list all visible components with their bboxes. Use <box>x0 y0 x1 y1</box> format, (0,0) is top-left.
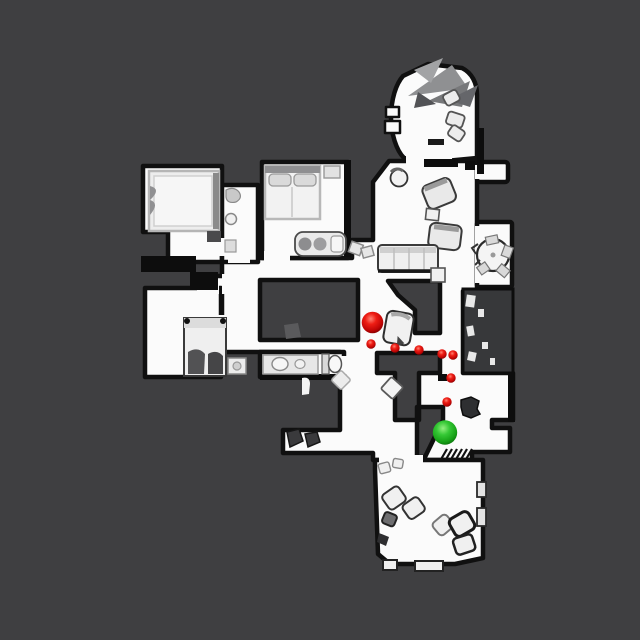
floorplan-map-canvas <box>0 0 640 640</box>
entry-tab <box>385 121 400 133</box>
map-background <box>0 0 640 640</box>
door <box>264 251 290 263</box>
hall-armchair <box>382 310 414 348</box>
bed-lowerleft <box>184 318 226 376</box>
duvet <box>208 352 223 374</box>
floorplan-map <box>0 0 640 640</box>
toilet <box>322 354 342 374</box>
bed-topleft <box>149 171 221 242</box>
waypoint-dot <box>446 373 455 382</box>
waypoint-dot <box>448 350 457 359</box>
stool-object <box>461 397 480 418</box>
nightstand-hall <box>228 358 246 374</box>
side-table <box>431 268 445 282</box>
couch <box>378 245 438 272</box>
goal-position-marker <box>433 420 457 444</box>
waypoint-dot <box>366 339 375 348</box>
entry-mark <box>428 139 444 145</box>
chaise <box>295 232 346 256</box>
side-table <box>425 208 439 220</box>
waypoint-dot <box>437 349 446 358</box>
bench <box>207 231 221 242</box>
duvet <box>188 349 205 374</box>
waypoint-dot <box>414 345 423 354</box>
island-mark <box>284 323 301 339</box>
nightstand <box>324 166 340 178</box>
dock-blob <box>302 378 310 395</box>
door <box>222 274 228 294</box>
agent-position-marker <box>362 312 384 334</box>
waypoint-dot <box>390 343 399 352</box>
entry-tab <box>386 107 399 117</box>
door <box>228 253 250 263</box>
waypoint-dot <box>442 397 451 406</box>
